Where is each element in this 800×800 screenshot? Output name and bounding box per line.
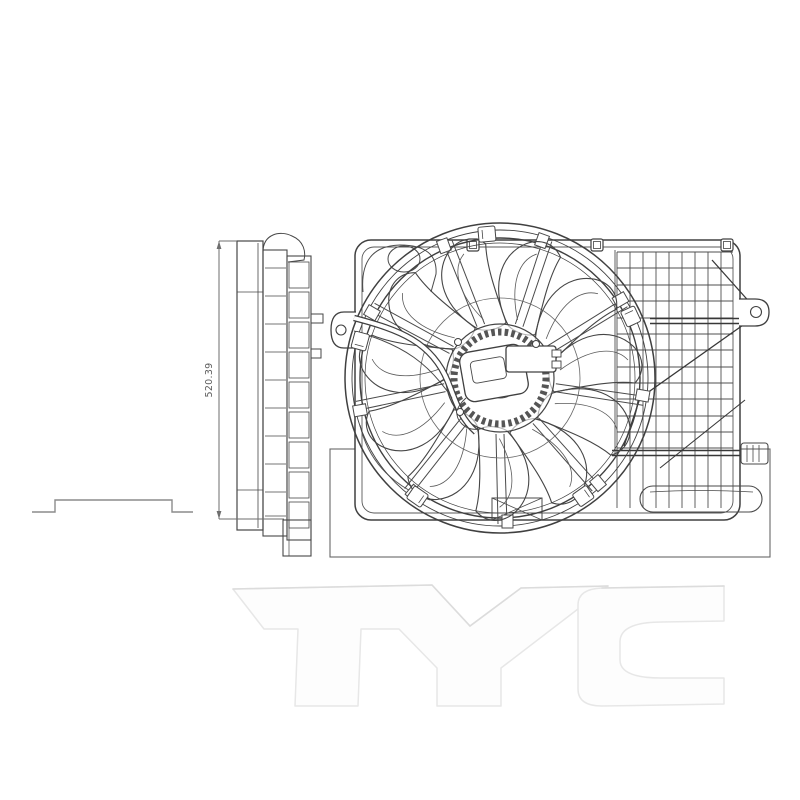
ribbed-tab-lower-right: [741, 443, 768, 464]
side-profile-view: [237, 233, 323, 556]
top-clip-middle: [591, 239, 603, 251]
mount-tab-right: [739, 299, 769, 326]
top-clip-right: [721, 239, 733, 251]
watermark-letter-c: [578, 586, 724, 706]
drawing-svg: 520.39: [0, 0, 800, 800]
connector-plug: [506, 346, 556, 372]
tyc-watermark: [233, 585, 724, 706]
product-technical-drawing: 520.39: [0, 0, 800, 800]
dimension-label: 520.39: [204, 362, 215, 397]
watermark-letters-ty: [233, 585, 608, 706]
front-view: [330, 223, 770, 557]
bracket-step-profile: [32, 500, 193, 512]
